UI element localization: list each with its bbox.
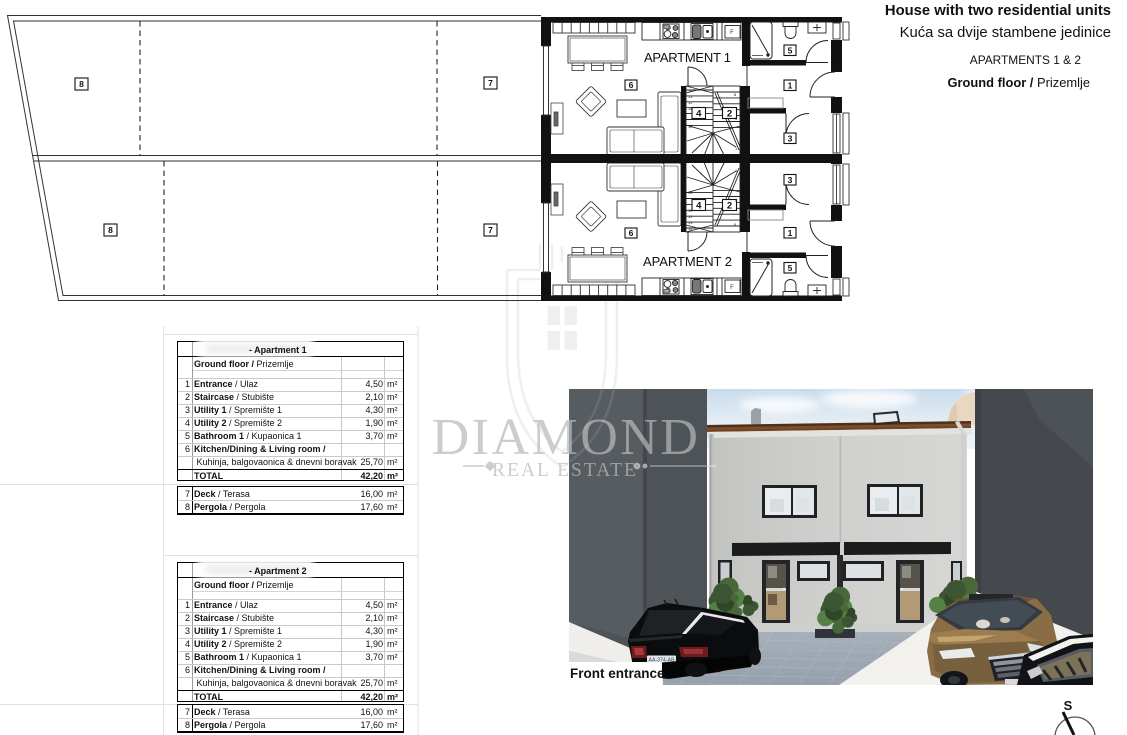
svg-text:REAL ESTATE: REAL ESTATE: [569, 460, 638, 481]
svg-text:Front entrance: Front entrance: [570, 666, 665, 681]
svg-text:DIAMOND: DIAMOND: [569, 409, 700, 466]
